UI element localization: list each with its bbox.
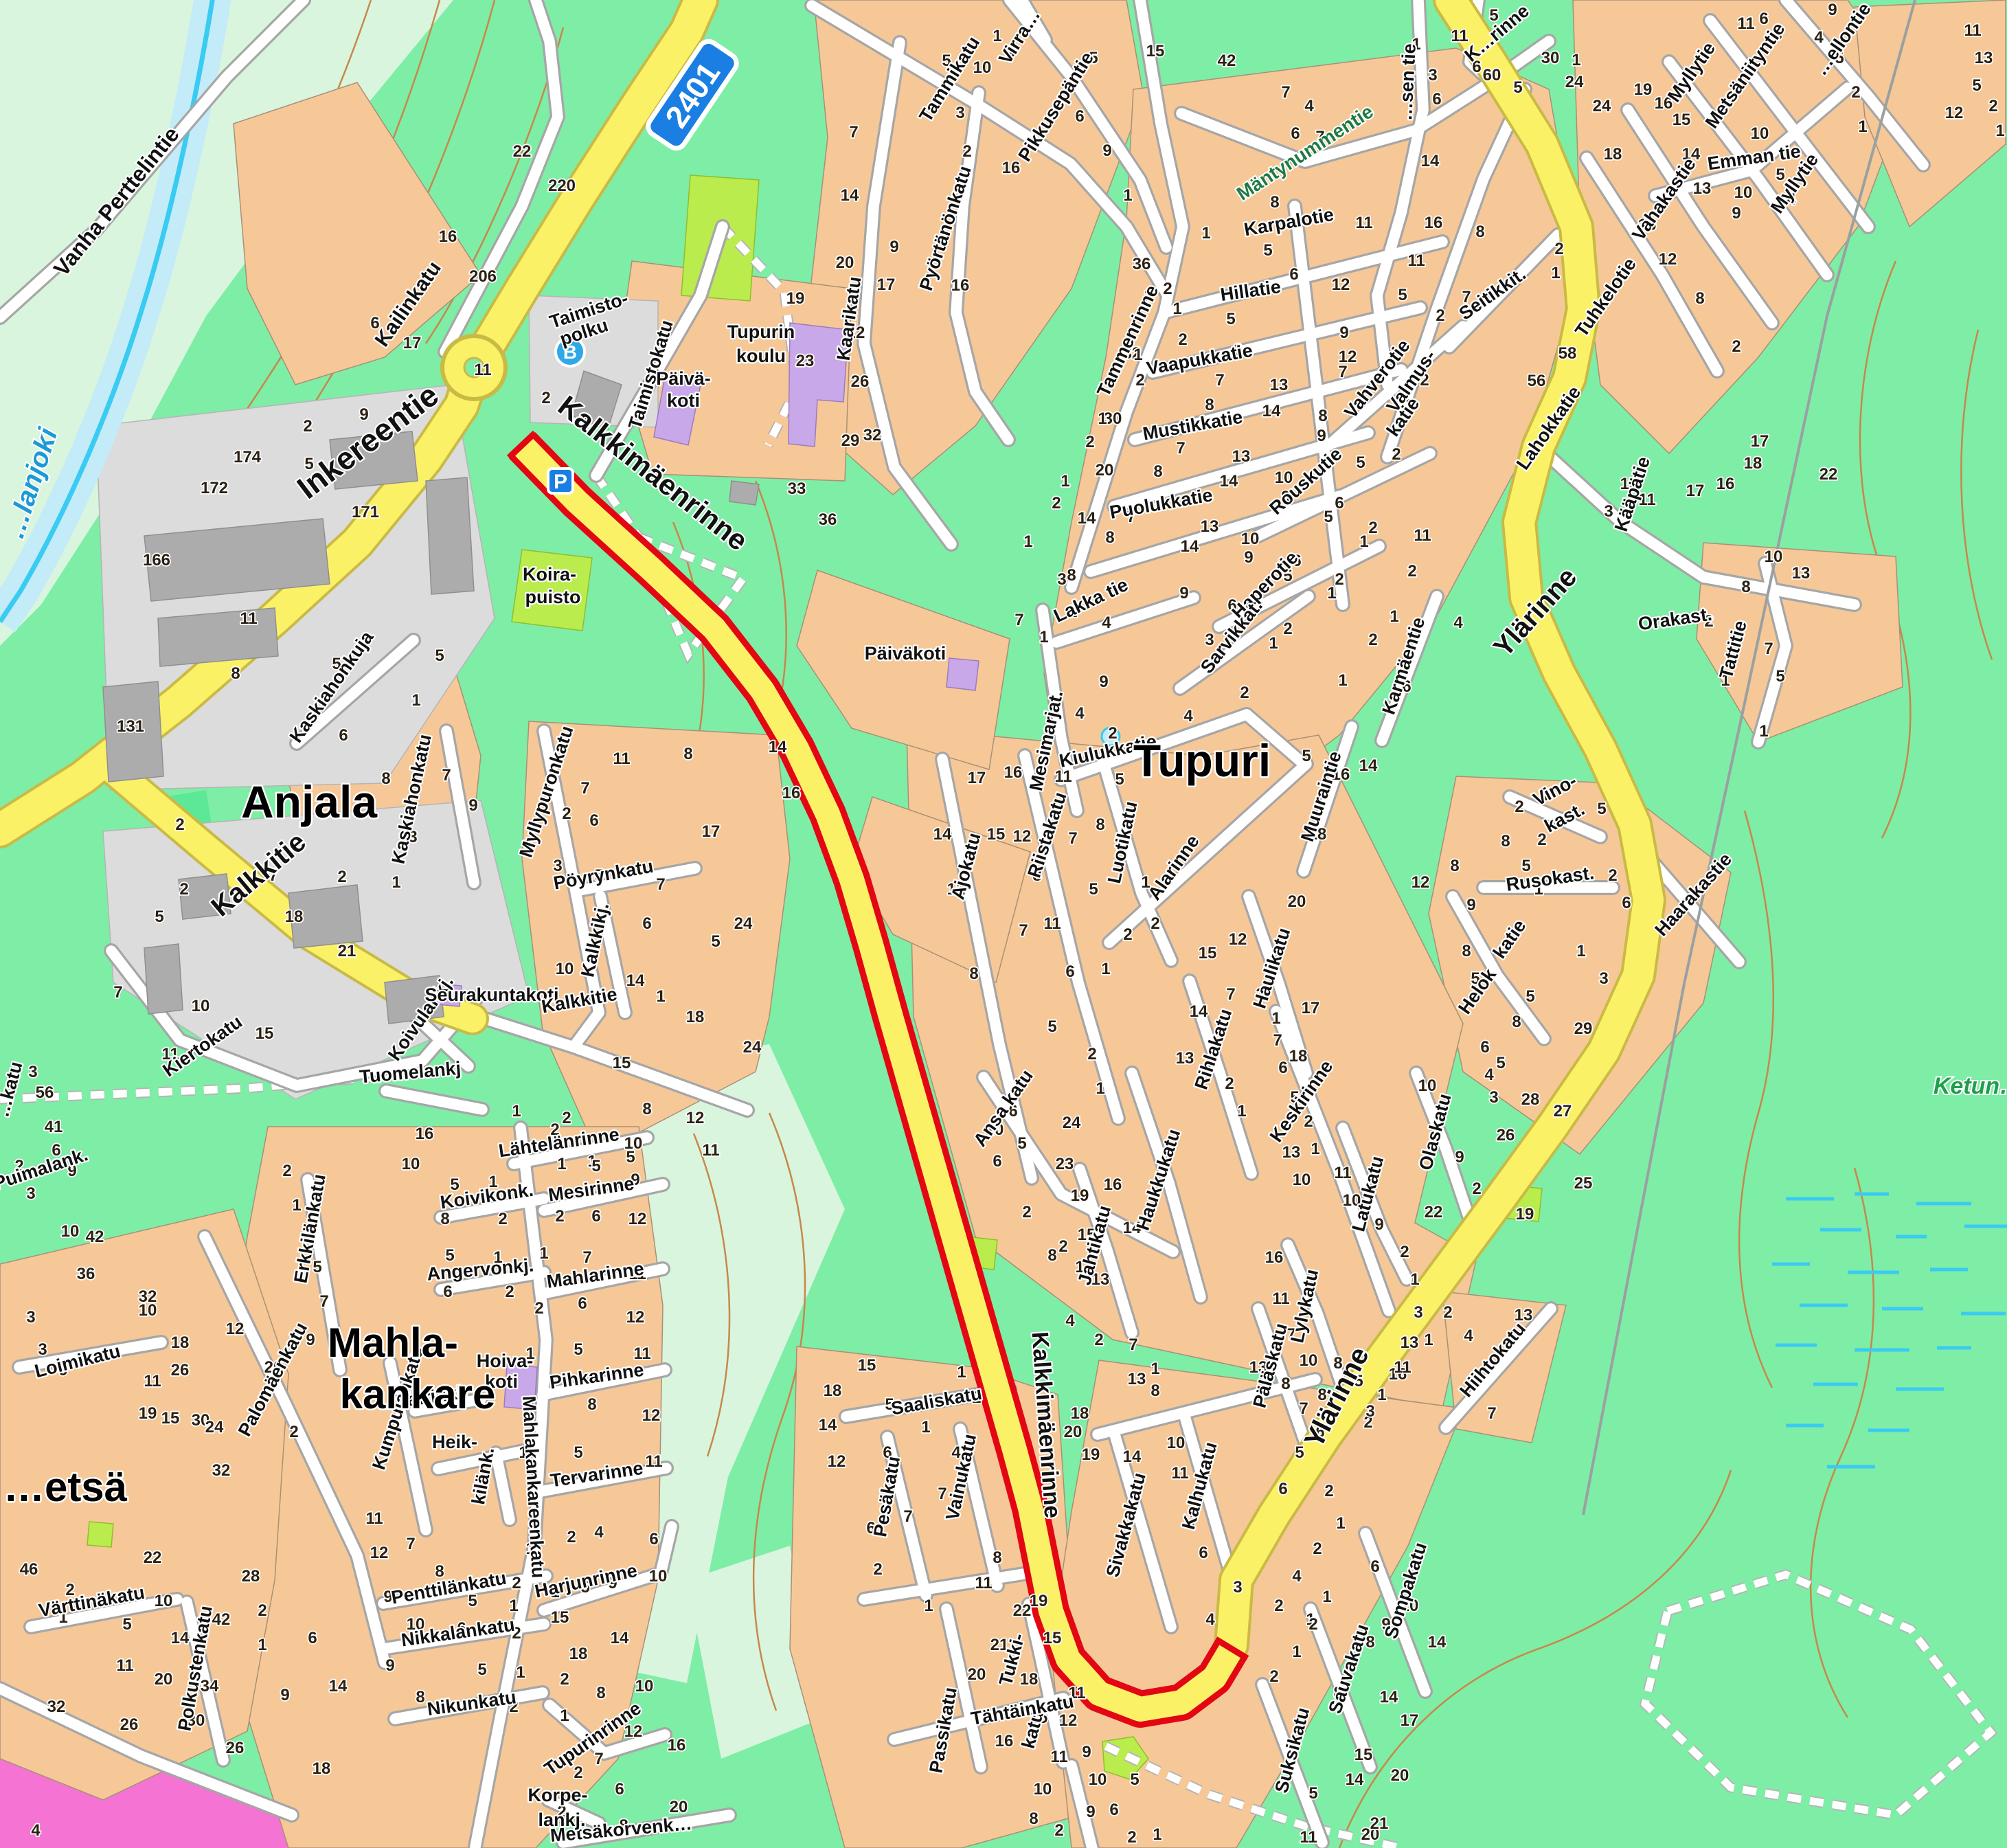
house-number: 6 <box>1278 1059 1287 1077</box>
house-number: 22 <box>144 1548 162 1567</box>
house-number: 2 <box>175 815 184 834</box>
house-number: 8 <box>1096 815 1104 834</box>
house-number: 11 <box>613 750 630 768</box>
house-number: 7 <box>1176 439 1185 458</box>
house-number: 7 <box>1764 640 1773 658</box>
house-number: 12 <box>1332 275 1350 294</box>
house-number: 2 <box>1443 1303 1452 1322</box>
house-number: 131 <box>117 717 144 736</box>
house-number: 8 <box>1475 223 1484 241</box>
house-number: 14 <box>819 1416 837 1434</box>
nature-label: Ketun… <box>1934 1073 2007 1099</box>
house-number: 5 <box>1513 78 1522 97</box>
house-number: 2 <box>1094 1331 1103 1349</box>
house-number: 28 <box>242 1567 260 1586</box>
house-number: 1 <box>1576 942 1585 960</box>
house-number: 14 <box>611 1629 629 1647</box>
house-number: 2 <box>258 1601 267 1620</box>
house-number: 5 <box>1776 667 1784 686</box>
house-number: 2 <box>1150 914 1159 933</box>
house-number: 5 <box>1017 1134 1026 1153</box>
house-number: 20 <box>836 253 854 272</box>
street-label: koulu <box>736 346 786 366</box>
house-number: 17 <box>702 822 721 841</box>
house-number: 18 <box>1289 1047 1308 1066</box>
house-number: 26 <box>1497 1126 1515 1145</box>
house-number: 20 <box>1096 461 1114 480</box>
house-number: 9 <box>1082 1743 1091 1761</box>
house-number: 9 <box>1828 1 1837 19</box>
house-number: 2 <box>1087 1045 1096 1063</box>
house-number: 9 <box>1339 324 1348 342</box>
house-number: 2 <box>1537 831 1546 849</box>
house-number: 7 <box>580 779 589 798</box>
house-number: 33 <box>788 480 806 498</box>
house-number: 1 <box>1995 122 2004 140</box>
house-number: 2 <box>1368 631 1377 649</box>
house-number: 17 <box>1686 482 1705 500</box>
house-number: 7 <box>594 1750 603 1768</box>
house-number: 22 <box>513 142 532 161</box>
house-number: 12 <box>1059 1711 1078 1730</box>
house-number: 2 <box>1515 798 1523 816</box>
house-number: 2 <box>560 1670 569 1689</box>
house-number: 19 <box>786 289 805 308</box>
house-number: 29 <box>1574 1019 1593 1038</box>
house-number: 24 <box>1593 97 1611 115</box>
house-number: 6 <box>578 1294 587 1313</box>
house-number: 2 <box>303 417 312 436</box>
house-number: 11 <box>1964 21 1981 40</box>
house-number: 2 <box>337 868 346 886</box>
house-number: 13 <box>1975 49 1993 67</box>
house-number: 12 <box>1945 104 1964 122</box>
house-number: 15 <box>1199 944 1217 962</box>
house-number: 2 <box>1283 620 1292 638</box>
house-number: 6 <box>1278 1480 1287 1498</box>
house-number: 8 <box>381 769 390 788</box>
house-number: 19 <box>1516 1205 1534 1224</box>
house-number: 5 <box>155 908 163 926</box>
house-number: 10 <box>1241 530 1260 548</box>
house-number: 7 <box>1215 371 1224 390</box>
house-number: 1 <box>516 1663 525 1682</box>
house-number: 18 <box>1604 145 1622 164</box>
house-number: 5 <box>1398 286 1407 304</box>
house-number: 1 <box>1327 584 1336 602</box>
house-number: 7 <box>1338 363 1347 381</box>
house-number: 6 <box>1480 1038 1489 1057</box>
house-number: 7 <box>406 1535 415 1553</box>
house-number: 21 <box>338 942 356 960</box>
house-number: 2 <box>873 1560 882 1579</box>
house-number: 14 <box>1346 1770 1364 1789</box>
house-number: 4 <box>1464 1327 1473 1345</box>
house-number: 6 <box>591 1207 600 1226</box>
house-number: 5 <box>711 932 720 951</box>
house-number: 2 <box>1608 866 1617 885</box>
house-number: 2 <box>282 1162 291 1180</box>
house-number: 1 <box>1096 1079 1104 1098</box>
house-number: 11 <box>1737 14 1754 33</box>
house-number: 10 <box>1751 124 1769 143</box>
house-number: 9 <box>1732 204 1740 223</box>
house-number: 12 <box>626 1308 645 1327</box>
place-name: Anjala <box>241 776 378 827</box>
house-number: 14 <box>1359 756 1378 775</box>
house-number: 11 <box>1355 214 1372 232</box>
house-number: 12 <box>1659 250 1677 269</box>
house-number: 9 <box>1244 548 1253 567</box>
house-number: 2 <box>1058 1237 1067 1256</box>
house-number: 15 <box>161 1409 180 1428</box>
house-number: 15 <box>613 1054 631 1072</box>
house-number: 1 <box>539 1244 548 1263</box>
house-number: 24 <box>734 914 753 933</box>
house-number: 12 <box>828 1452 846 1471</box>
house-number: 6 <box>1622 894 1631 912</box>
house-number: 1 <box>1759 722 1768 741</box>
house-number: 15 <box>551 1608 569 1627</box>
place-name: …etsä <box>3 1464 128 1510</box>
house-number: 11 <box>1300 1828 1317 1847</box>
house-number: 8 <box>1067 566 1076 585</box>
house-number: 10 <box>556 960 574 978</box>
house-number: 8 <box>1450 857 1459 875</box>
street-label: …sen tie <box>1395 43 1420 122</box>
house-number: 7 <box>1226 985 1235 1004</box>
house-number: 11 <box>1171 1464 1188 1483</box>
house-number: 2 <box>289 1423 298 1441</box>
street-label: Päiväkoti <box>865 643 946 664</box>
house-number: 2 <box>1269 1667 1278 1686</box>
house-number: 58 <box>1558 344 1577 363</box>
street-label: Korpe- <box>528 1785 588 1805</box>
house-number: 32 <box>212 1461 231 1480</box>
house-number: 1 <box>1123 186 1132 205</box>
house-number: 10 <box>402 1155 420 1173</box>
house-number: 5 <box>1295 1443 1304 1462</box>
house-number: 11 <box>1407 251 1425 270</box>
house-number: 16 <box>995 1732 1014 1750</box>
house-number: 166 <box>143 551 170 570</box>
house-number: 60 <box>1483 66 1501 84</box>
house-number: 206 <box>469 267 497 286</box>
house-number: 16 <box>782 784 801 802</box>
house-number: 18 <box>285 908 304 926</box>
house-number: 36 <box>77 1265 95 1283</box>
house-number: 1 <box>1039 628 1048 646</box>
house-number: 24 <box>1063 1114 1081 1132</box>
house-number: 7 <box>319 1292 328 1311</box>
house-number: 6 <box>1075 107 1084 126</box>
street-label: Seurakuntakoti <box>424 984 558 1005</box>
house-number: 5 <box>1496 1054 1505 1072</box>
house-number: 1 <box>292 1196 301 1215</box>
house-number: 1 <box>258 1636 267 1654</box>
house-number: 24 <box>205 1418 224 1436</box>
house-number: 22 <box>1013 1601 1032 1620</box>
building <box>144 944 183 1014</box>
house-number: 14 <box>769 738 787 756</box>
house-number: 13 <box>1282 1143 1301 1162</box>
house-number: 8 <box>1047 1246 1056 1265</box>
house-number: 29 <box>841 431 860 450</box>
house-number: 2 <box>1225 1074 1234 1093</box>
house-number: 8 <box>416 1688 424 1706</box>
house-number: 30 <box>1541 49 1560 67</box>
house-number: 3 <box>1233 1578 1242 1597</box>
house-number: 26 <box>851 372 870 391</box>
house-number: 26 <box>120 1715 139 1734</box>
house-number: 6 <box>1199 1544 1207 1562</box>
house-number: 1 <box>557 1155 566 1173</box>
house-number: 1 <box>1061 472 1069 491</box>
house-number: 5 <box>1526 987 1534 1006</box>
house-number: 21 <box>1370 1814 1389 1833</box>
house-number: 13 <box>1401 1333 1419 1352</box>
house-number: 13 <box>1270 376 1289 394</box>
house-number: 5 <box>574 1443 582 1462</box>
house-number: 2 <box>179 880 188 899</box>
house-number: 8 <box>587 1395 596 1414</box>
house-number: 3 <box>38 1340 47 1359</box>
house-number: 14 <box>626 971 645 990</box>
house-number: 1 <box>1390 607 1398 626</box>
house-number: 10 <box>61 1222 80 1241</box>
house-number: 23 <box>796 352 815 370</box>
house-number: 11 <box>975 1574 992 1592</box>
house-number: 46 <box>20 1560 38 1579</box>
house-number: 3 <box>955 104 964 122</box>
house-number: 1 <box>1101 960 1110 978</box>
house-number: 3 <box>26 1308 35 1327</box>
house-number: 5 <box>1089 880 1098 899</box>
house-number: 15 <box>1043 1629 1062 1647</box>
house-number: 1 <box>1237 1102 1246 1120</box>
house-number: 16 <box>1104 1175 1122 1194</box>
house-number: 7 <box>1487 1404 1496 1423</box>
house-number: 171 <box>352 503 379 521</box>
house-number: 16 <box>1004 763 1023 782</box>
house-number: 1 <box>1322 1588 1331 1606</box>
house-number: 5 <box>1226 310 1235 328</box>
house-number: 11 <box>1451 27 1468 45</box>
house-number: 2 <box>562 1109 571 1127</box>
house-number: 8 <box>1281 1375 1290 1393</box>
house-number: 1 <box>1551 264 1560 282</box>
house-number: 9 <box>1374 1215 1383 1234</box>
house-number: 2 <box>1308 1615 1317 1634</box>
house-number: 6 <box>649 1530 658 1548</box>
house-number: 2 <box>1988 97 1997 115</box>
house-number: 24 <box>743 1038 762 1057</box>
street-label: Heik- <box>432 1432 477 1452</box>
house-number: 20 <box>1064 1423 1082 1441</box>
house-number: 18 <box>313 1759 331 1778</box>
place-name: kankare <box>340 1371 496 1417</box>
house-number: 10 <box>1765 548 1783 566</box>
house-number: 10 <box>973 58 992 77</box>
house-number: 42 <box>1218 52 1236 70</box>
park-area <box>87 1522 113 1547</box>
house-number: 12 <box>1411 873 1430 892</box>
house-number: 2 <box>1274 1597 1283 1615</box>
house-number: 11 <box>474 361 491 379</box>
house-number: 9 <box>1086 1803 1095 1821</box>
house-number: 9 <box>1102 142 1111 160</box>
house-number: 4 <box>1292 1567 1302 1586</box>
house-number: 17 <box>1302 999 1320 1017</box>
house-number: 8 <box>231 664 240 683</box>
house-number: 2 <box>562 804 571 823</box>
house-number: 19 <box>139 1404 157 1423</box>
house-number: 14 <box>1078 509 1096 528</box>
house-number: 2 <box>1163 280 1172 298</box>
house-number: 14 <box>1380 1688 1398 1706</box>
house-number: 9 <box>1455 1148 1464 1167</box>
house-number: 13 <box>1128 1370 1146 1388</box>
house-number: 18 <box>824 1382 842 1400</box>
house-number: 5 <box>122 1615 131 1634</box>
house-number: 11 <box>702 1141 719 1160</box>
house-number: 18 <box>686 1008 705 1026</box>
house-number: 11 <box>1272 1289 1289 1308</box>
house-number: 11 <box>144 1372 161 1390</box>
house-number: 16 <box>951 276 970 295</box>
house-number: 17 <box>968 769 986 787</box>
house-number: 8 <box>1029 1810 1038 1828</box>
map-canvas[interactable]: BP24012222020616617119251741721661311712… <box>0 0 2007 1848</box>
house-number: 16 <box>1265 1248 1284 1267</box>
house-number: 7 <box>1299 1399 1308 1418</box>
house-number: 7 <box>1273 1031 1282 1050</box>
house-number: 9 <box>1317 427 1326 445</box>
house-number: 19 <box>1634 80 1653 99</box>
house-number: 2 <box>1851 83 1860 102</box>
house-number: 1 <box>1150 1360 1159 1378</box>
house-number: 9 <box>1466 896 1475 914</box>
house-number: 7 <box>1014 611 1023 629</box>
public-building <box>946 658 979 690</box>
house-number: 10 <box>1418 1077 1437 1095</box>
house-number: 1 <box>1201 224 1210 243</box>
house-number: 8 <box>1501 832 1510 850</box>
house-number: 24 <box>1565 73 1584 91</box>
house-number: 11 <box>240 609 257 628</box>
house-number: 2 <box>1554 240 1563 258</box>
house-number: 3 <box>1489 1088 1498 1107</box>
house-number: 16 <box>416 1125 434 1143</box>
house-number: 9 <box>385 1656 394 1675</box>
place-name: Mahla- <box>328 1320 458 1366</box>
house-number: 1 <box>1336 1514 1345 1533</box>
house-number: 6 <box>993 1152 1001 1171</box>
house-number: 6 <box>642 914 651 933</box>
house-number: 172 <box>201 479 228 497</box>
house-number: 15 <box>1354 1746 1373 1764</box>
house-number: 27 <box>1554 1102 1572 1120</box>
house-number: 18 <box>1071 1404 1089 1423</box>
house-number: 5 <box>435 646 444 665</box>
house-number: 7 <box>1068 829 1077 848</box>
house-number: 6 <box>1335 494 1343 512</box>
house-number: 4 <box>594 1523 604 1542</box>
house-number: 32 <box>47 1698 66 1716</box>
house-number: 3 <box>28 1063 37 1081</box>
house-number: 10 <box>1734 183 1753 202</box>
house-number: 6 <box>615 1780 624 1799</box>
house-number: 11 <box>1334 1164 1351 1182</box>
house-number: 6 <box>308 1629 317 1647</box>
house-number: 18 <box>1744 454 1762 473</box>
house-number: 12 <box>370 1544 389 1562</box>
house-number: 9 <box>468 796 477 815</box>
house-number: 2 <box>1085 433 1094 451</box>
building <box>158 608 278 666</box>
house-number: 8 <box>596 1684 605 1702</box>
house-number: 14 <box>1428 1633 1447 1652</box>
place-name: Tupuri <box>1133 735 1271 786</box>
house-number: 10 <box>649 1567 668 1586</box>
house-number: 3 <box>1599 969 1608 988</box>
house-number: 1 <box>993 27 1001 45</box>
street-label: koti <box>667 390 700 411</box>
house-number: 17 <box>1751 432 1769 451</box>
house-number: 9 <box>1179 584 1188 602</box>
house-number: 5 <box>1302 747 1311 765</box>
house-number: 5 <box>1115 770 1124 789</box>
house-number: 6 <box>1065 962 1074 981</box>
house-number: 1 <box>924 1597 933 1615</box>
house-number: 14 <box>1262 402 1281 420</box>
house-number: 22 <box>1819 465 1838 484</box>
house-number: 8 <box>1462 942 1471 960</box>
house-number: 11 <box>365 1509 383 1528</box>
house-number: 1 <box>560 1706 569 1725</box>
house-number: 7 <box>1281 83 1290 102</box>
house-number: 5 <box>477 1660 486 1679</box>
house-number: 19 <box>1071 1186 1089 1205</box>
house-number: 1 <box>392 873 400 892</box>
house-number: 14 <box>933 825 952 844</box>
house-number: 1 <box>656 987 665 1006</box>
house-number: 4 <box>1453 613 1463 632</box>
house-number: 7 <box>1019 921 1028 940</box>
house-number: 36 <box>819 510 837 529</box>
house-number: 8 <box>1318 407 1327 425</box>
house-number: 14 <box>1190 1002 1208 1021</box>
house-number: 6 <box>1370 1557 1379 1576</box>
house-number: 13 <box>1792 564 1811 583</box>
house-number: 4 <box>1205 1610 1215 1629</box>
house-number: 17 <box>877 275 896 294</box>
house-number: 12 <box>1229 930 1247 949</box>
house-number: 12 <box>1013 827 1032 846</box>
house-number: 10 <box>1089 1770 1107 1789</box>
house-number: 2 <box>567 1528 576 1546</box>
house-number: 1 <box>509 1597 518 1615</box>
house-number: 5 <box>1972 76 1981 95</box>
house-number: 15 <box>987 825 1006 844</box>
house-number: 220 <box>548 177 576 195</box>
house-number: 2 <box>1472 1180 1481 1198</box>
house-number: 20 <box>155 1670 173 1689</box>
house-number: 8 <box>1695 289 1704 308</box>
house-number: 4 <box>1183 707 1193 725</box>
house-number: 12 <box>628 1210 647 1228</box>
house-number: 18 <box>171 1333 190 1352</box>
